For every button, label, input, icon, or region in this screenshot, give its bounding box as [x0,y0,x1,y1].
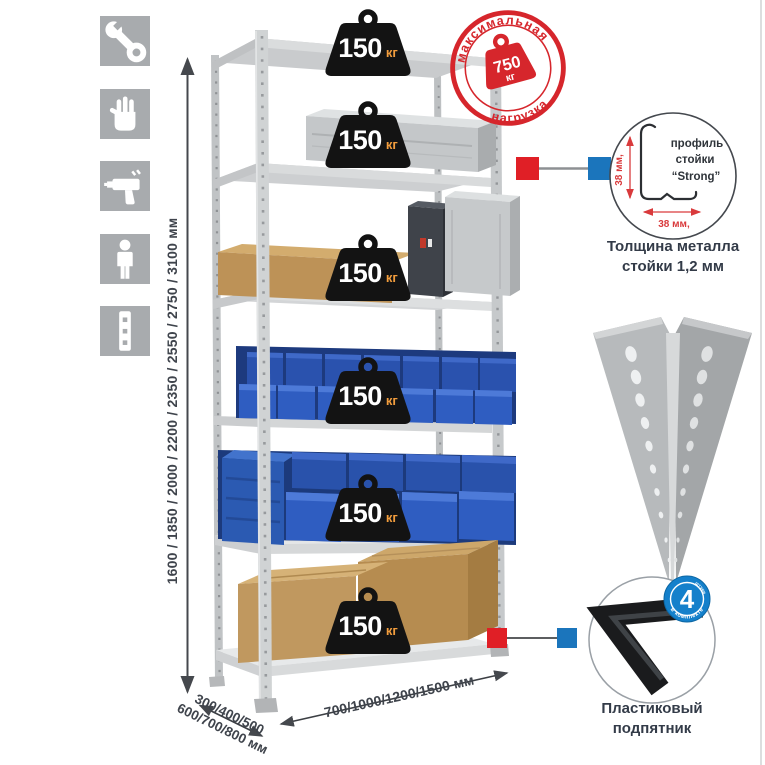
foot-callout-connector [487,628,577,648]
shelf-load-badge: 150кг [312,586,424,664]
profile-callout-connector [516,157,611,180]
foot-caption-line1: Пластиковый [577,699,727,719]
gloves-icon [100,89,150,139]
load-value: 150 [338,611,382,641]
load-value: 150 [338,33,382,63]
drill-tile [100,161,150,211]
drill-icon [100,161,150,211]
load-unit: кг [386,623,398,638]
load-unit: кг [386,270,398,285]
assembly-tools-tile [100,16,150,66]
shelf-load-badge: 150кг [312,100,424,178]
corner-profile-image [593,317,752,584]
load-unit: кг [386,393,398,408]
profile-dim-horizontal: 38 мм, [658,219,690,230]
profile-caption-line1: Толщина металла [584,237,762,257]
load-value: 150 [338,125,382,155]
gloves-tile [100,89,150,139]
upright-strip-icon [100,306,150,356]
max-load-stamp: максимальная нагрузка 750 кг [440,0,576,136]
profile-label-line1: профиль [671,138,724,150]
foot-caption: Пластиковый подпятник [577,699,727,738]
quantity-badge: в комплекте штуки 4 [664,576,710,622]
shelf-load-badge: 150кг [312,8,424,86]
profile-dim-vertical: 38 мм, [614,154,625,186]
height-dimensions-label: 1600 / 1850 / 2000 / 2200 / 2350 / 2550 … [164,181,180,621]
red-marker-square [487,628,507,648]
blue-marker-square [588,157,611,180]
foot-caption-line2: подпятник [577,719,727,739]
load-value: 150 [338,258,382,288]
stamp-arc-bottom-text: нагрузка [487,95,553,132]
load-unit: кг [386,137,398,152]
profile-caption: Толщина металла стойки 1,2 мм [584,237,762,276]
profile-label-line2: стойки [676,154,715,166]
red-marker-square [516,157,539,180]
person-icon [100,234,150,284]
blue-marker-square [557,628,577,648]
load-unit: кг [386,45,398,60]
wrench-icon [100,16,150,66]
load-unit: кг [386,510,398,525]
load-value: 150 [338,381,382,411]
badge-number: 4 [680,584,695,614]
product-infographic: 38 мм, 38 мм, профиль стойки “Strong” [0,0,765,765]
profile-caption-line2: стойки 1,2 мм [584,257,762,277]
shelf-load-badge: 150кг [312,473,424,551]
shelf-load-badge: 150кг [312,356,424,434]
person-tile [100,234,150,284]
profile-label-line3: “Strong” [672,171,721,183]
load-value: 150 [338,498,382,528]
profile-detail-circle: 38 мм, 38 мм, профиль стойки “Strong” [610,113,736,239]
shelf-load-badge: 150кг [312,233,424,311]
svg-text:нагрузка: нагрузка [487,95,553,132]
upright-strip-tile [100,306,150,356]
